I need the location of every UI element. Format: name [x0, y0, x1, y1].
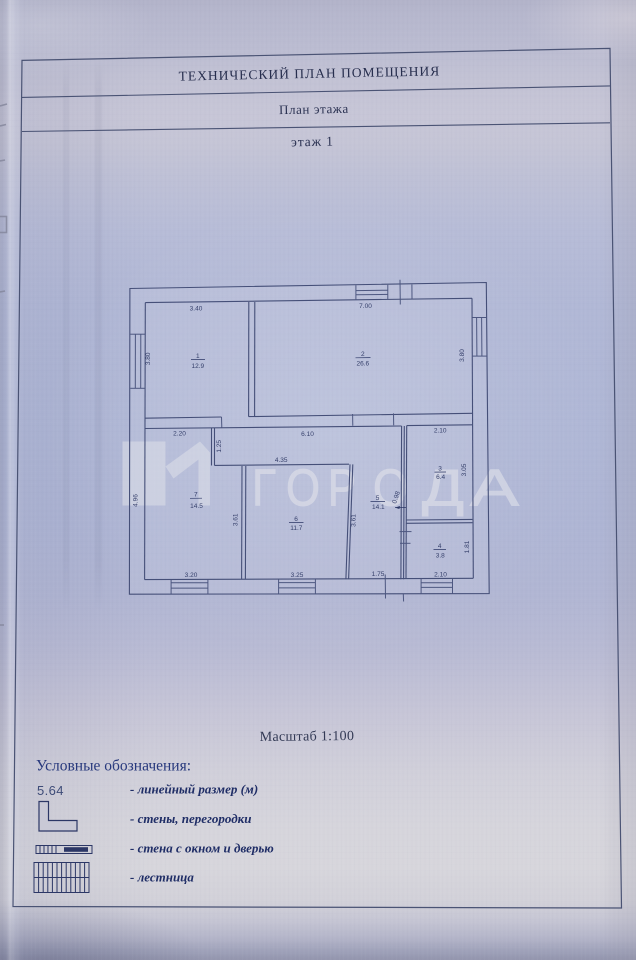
svg-text:Масштаб 1:100: Масштаб 1:100: [260, 729, 355, 745]
svg-text:3.80: 3.80: [459, 349, 466, 362]
svg-text:6: 6: [294, 516, 298, 523]
svg-text:2.10: 2.10: [434, 571, 447, 578]
svg-text:3.8: 3.8: [436, 552, 445, 559]
svg-text:26.6: 26.6: [356, 361, 369, 368]
svg-text:1.75: 1.75: [372, 571, 385, 578]
svg-text:2.10: 2.10: [434, 428, 447, 435]
svg-text:5: 5: [376, 495, 380, 502]
svg-text:5.64: 5.64: [37, 783, 64, 798]
svg-text:План этажа: План этажа: [279, 101, 349, 117]
svg-text:Условные обозначения:: Условные обозначения:: [36, 758, 191, 775]
svg-text:3: 3: [438, 466, 442, 473]
svg-text:2: 2: [361, 351, 365, 358]
svg-text:3.61: 3.61: [350, 514, 357, 527]
svg-text:- линейный размер (м): - линейный размер (м): [130, 782, 258, 797]
svg-text:14.5: 14.5: [190, 503, 203, 510]
svg-text:2.20: 2.20: [173, 430, 186, 437]
svg-text:7.00: 7.00: [359, 303, 372, 310]
svg-text:Д: Д: [422, 460, 464, 518]
svg-text:этаж 1: этаж 1: [291, 134, 334, 150]
svg-text:12.9: 12.9: [191, 363, 204, 370]
svg-text:3.20: 3.20: [185, 572, 198, 579]
svg-text:3.61: 3.61: [233, 513, 240, 526]
svg-text:1.81: 1.81: [464, 540, 471, 553]
svg-text:3.80: 3.80: [145, 352, 152, 365]
svg-text:4.35: 4.35: [275, 457, 288, 464]
svg-text:Г: Г: [252, 460, 276, 518]
svg-text:1: 1: [196, 353, 200, 360]
svg-text:6.4: 6.4: [436, 474, 445, 481]
svg-text:11.7: 11.7: [290, 525, 303, 532]
svg-text:- стены, перегородки: - стены, перегородки: [130, 811, 251, 826]
svg-text:4.96: 4.96: [132, 494, 139, 507]
svg-text:- лестница: - лестница: [130, 870, 194, 885]
svg-text:14.1: 14.1: [372, 504, 385, 511]
svg-text:4: 4: [438, 543, 442, 550]
svg-text:ТЕХНИЧЕСКИЙ ПЛАН ПОМЕЩЕНИЯ: ТЕХНИЧЕСКИЙ ПЛАН ПОМЕЩЕНИЯ: [179, 63, 441, 83]
svg-text:6.10: 6.10: [301, 431, 314, 438]
svg-text:7: 7: [194, 492, 198, 499]
svg-text:1.25: 1.25: [216, 440, 223, 453]
svg-text:3.25: 3.25: [291, 572, 304, 579]
svg-text:О: О: [286, 460, 320, 518]
svg-text:А: А: [470, 460, 519, 518]
svg-text:- стена с окном и дверью: - стена с окном и дверью: [130, 841, 274, 856]
svg-text:3.05: 3.05: [461, 463, 468, 476]
svg-text:3.40: 3.40: [190, 306, 203, 313]
